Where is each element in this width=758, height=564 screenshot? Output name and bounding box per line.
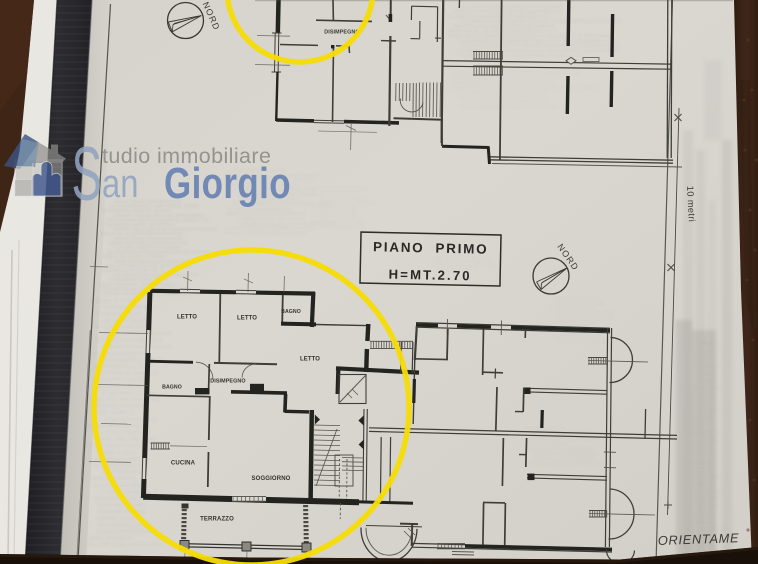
svg-text:AS AVEG: AS AVEG	[693, 415, 711, 420]
svg-text:.DMRIS: .DMRIS	[702, 378, 717, 383]
svg-text:ADSI..R O: ADSI..R O	[700, 474, 720, 479]
svg-text:TERRAZZO: TERRAZZO	[200, 517, 234, 523]
svg-text:SNA.ESR.CONA.ROEONAROG: SNA.ESR.CONA.ROEONAROG	[88, 542, 162, 548]
svg-text:OMCTCRCD.TMMC..EI.TOAM.E GEAG.: OMCTCRCD.TMMC..EI.TOAM.E GEAG.VE.RV	[459, 104, 559, 109]
svg-text:EADSVDAE.RDTAN.: EADSVDAE.RDTAN.	[321, 224, 365, 229]
svg-text:LETTO: LETTO	[177, 314, 197, 320]
svg-text:MVDAMSIV: MVDAMSIV	[697, 504, 720, 509]
svg-text:TMSMVC .ESTE: TMSMVC .ESTE	[96, 516, 134, 522]
svg-text:Giorgio: Giorgio	[164, 159, 291, 208]
svg-text:VESOGVGRVCREODMG: VESOGVGRVCREODMG	[96, 529, 155, 535]
svg-text:LETTO: LETTO	[300, 356, 320, 362]
svg-text:SOGGIORNO: SOGGIORNO	[251, 476, 290, 482]
svg-text:TSAOONSSESDND S ADSRIIAVRVIDST: TSAOONSSESDND S ADSRIIAVRVIDSTTCOOCAI.GV	[460, 53, 582, 58]
svg-text:CUCINA: CUCINA	[171, 461, 196, 467]
svg-text:GIMVNECI.: GIMVNECI.	[700, 408, 723, 413]
svg-text:AVEGOAGS: AVEGOAGS	[698, 489, 722, 494]
svg-text:OOACVIR STOCOCT: OOACVIR STOCOCT	[98, 377, 148, 383]
svg-text:S: S	[72, 132, 102, 217]
svg-text:NSDCIS: NSDCIS	[695, 445, 711, 450]
svg-text:DOODAEN.OCGMA: DOODAEN.OCGMA	[98, 503, 145, 509]
svg-text:..I NC: ..I NC	[696, 400, 707, 405]
svg-text:AGTMVAN CTM.IGVES.: AGTMVAN CTM.IGVES.	[102, 417, 158, 423]
svg-text:IOE NSN: IOE NSN	[699, 371, 717, 376]
svg-text:DIAVNOVM: DIAVNOVM	[698, 363, 721, 368]
svg-text:VV ES: VV ES	[691, 482, 704, 487]
svg-text:MIMDEVR: MIMDEVR	[694, 519, 714, 524]
svg-text:PIANO PRIMO: PIANO PRIMO	[373, 239, 489, 256]
svg-text:O.DAMDA R .C MR: O.DAMDA R .C MR	[90, 298, 135, 304]
svg-text:VACTTCD EIM.ERRCS: VACTTCD EIM.ERRCS	[94, 483, 148, 489]
svg-text:S AMRREAO: S AMRREAO	[694, 496, 720, 501]
svg-text:STCAMVDOMOOOGT: STCAMVDOMOOOGT	[96, 324, 148, 330]
svg-text:MDDNVMMONCGD NV NGO AN M: MDDNVMMONCGD NV NGO AN M	[529, 461, 604, 466]
svg-text:OMDTGGCDS: OMDTGGCDS	[690, 430, 718, 435]
svg-text:IATOC.DC.: IATOC.DC.	[693, 511, 715, 516]
svg-text:NAM OVEA: NAM OVEA	[696, 385, 719, 390]
svg-text:10 metri: 10 metri	[685, 186, 697, 223]
svg-text:NACCGGN.CIEOCCSC: NACCGGN.CIEOCCSC	[557, 339, 607, 344]
svg-text:O.SV I: O.SV I	[695, 356, 708, 361]
svg-text:DISIMPEGNO: DISIMPEGNO	[210, 379, 245, 385]
svg-text:BAGNO: BAGNO	[281, 309, 301, 315]
svg-text:ORIENTAME: ORIENTAME	[658, 530, 740, 548]
svg-text:OOTV: OOTV	[701, 393, 713, 398]
svg-text:CIGECSMGTMSSSDI.T: CIGECSMGTMSSSDI.T	[91, 404, 146, 410]
svg-text:EEEEIAD: EEEEIAD	[701, 341, 720, 346]
svg-text:N EIM ISOVTR..M: N EIM ISOVTR..M	[97, 311, 139, 317]
svg-text:MVO.T.: MVO.T.	[690, 422, 705, 427]
svg-text:an: an	[102, 161, 138, 206]
svg-text:LETTO: LETTO	[237, 315, 257, 321]
svg-text:RTCC. A.CVDOR S.IOMTEAGDETV: RTCC. A.CVDOR S.IOMTEAGDETV	[226, 230, 307, 235]
svg-text:MNEGMOSAAMSOMVVTVEO: MNEGMOSAAMSOMVVTVEO	[102, 344, 172, 350]
svg-text:SEMD EESEMD.M: SEMD EESEMD.M	[89, 536, 132, 542]
svg-text:BAGNO: BAGNO	[162, 385, 182, 391]
svg-text:RIVSRAS: RIVSRAS	[693, 452, 712, 457]
svg-text:.C.OSG.ED: .C.OSG.ED	[690, 459, 712, 464]
svg-text:NNVRDT: NNVRDT	[703, 348, 721, 353]
svg-text:EI.N: EI.N	[695, 467, 704, 472]
svg-text:H=MT.2.70: H=MT.2.70	[388, 267, 471, 284]
svg-text:VDOEC: VDOEC	[701, 437, 716, 442]
